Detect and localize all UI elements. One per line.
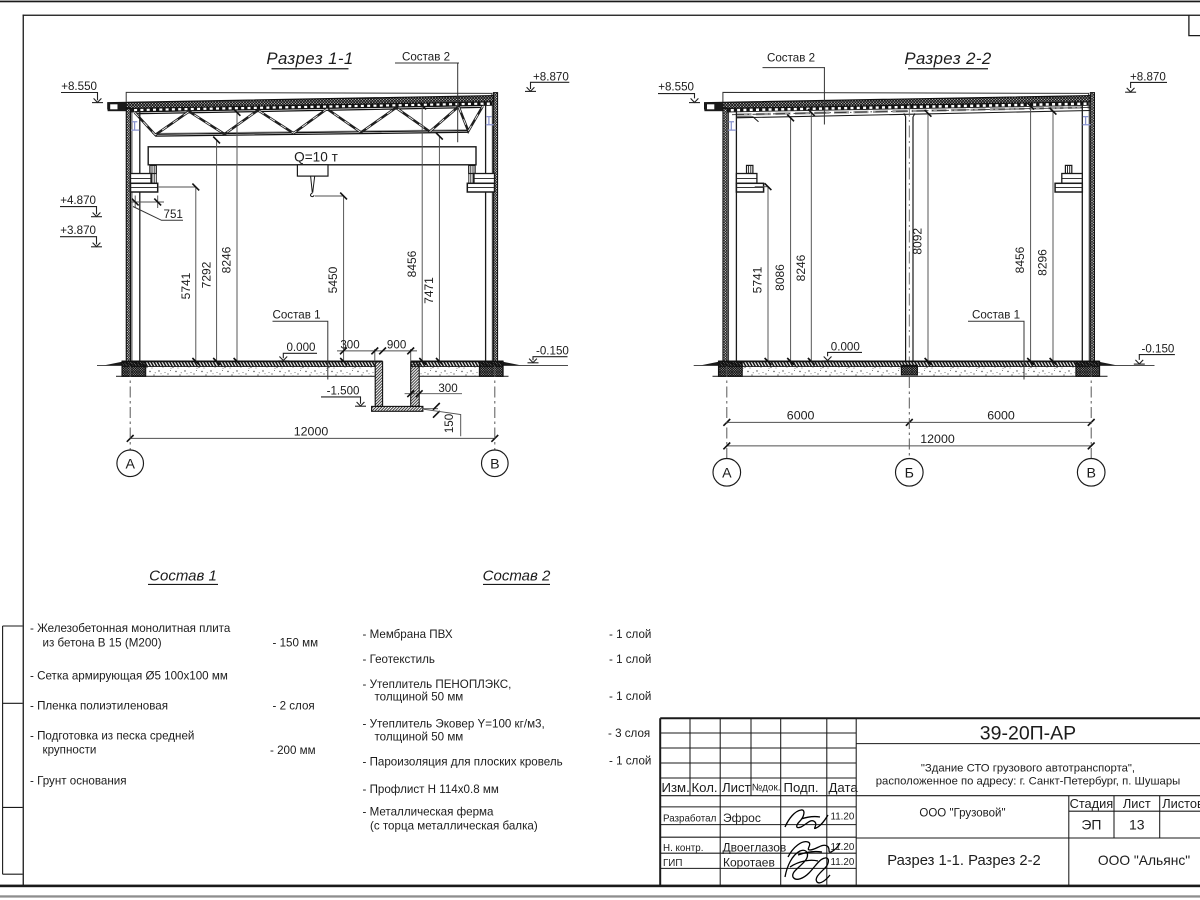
svg-text:7292: 7292 — [199, 261, 213, 288]
svg-text:11.20: 11.20 — [831, 812, 855, 823]
svg-text:расположенное по адресу: г. Са: расположенное по адресу: г. Санкт-Петерб… — [876, 776, 1180, 788]
svg-text:"Здание СТО грузового автотран: "Здание СТО грузового автотранспорта", — [921, 763, 1135, 775]
svg-text:751: 751 — [164, 208, 183, 221]
svg-text:6000: 6000 — [987, 409, 1015, 423]
svg-text:- Грунт основания: - Грунт основания — [30, 774, 127, 787]
svg-text:толщиной 50 мм: толщиной 50 мм — [375, 691, 464, 704]
svg-text:- Профлист Н 114х0.8 мм: - Профлист Н 114х0.8 мм — [363, 783, 499, 796]
svg-text:из бетона В 15 (М200): из бетона В 15 (М200) — [43, 636, 162, 649]
svg-text:В: В — [1086, 465, 1095, 481]
svg-text:- 150 мм: - 150 мм — [273, 636, 319, 649]
svg-text:- Утеплитель ПЕНОПЛЭКС,: - Утеплитель ПЕНОПЛЭКС, — [363, 678, 512, 691]
svg-text:5741: 5741 — [751, 266, 765, 293]
svg-text:8456: 8456 — [1013, 246, 1027, 273]
svg-text:Состав 2: Состав 2 — [483, 568, 551, 585]
svg-text:Разрез 2-2: Разрез 2-2 — [904, 49, 991, 68]
svg-text:11.20: 11.20 — [831, 842, 855, 853]
svg-text:Двоеглазов: Двоеглазов — [723, 841, 787, 855]
svg-text:- 1 слой: - 1 слой — [609, 755, 651, 768]
svg-text:- Мембрана ПВХ: - Мембрана ПВХ — [363, 628, 453, 641]
svg-text:8086: 8086 — [773, 264, 787, 291]
svg-text:- Подготовка из песка средней: - Подготовка из песка средней — [30, 729, 194, 742]
svg-text:8456: 8456 — [405, 250, 419, 277]
svg-text:-1.500: -1.500 — [327, 385, 360, 398]
svg-text:Изм.: Изм. — [662, 780, 690, 795]
svg-text:Подп.: Подп. — [784, 780, 819, 795]
svg-text:Состав 1: Состав 1 — [272, 308, 320, 321]
svg-text:ГИП: ГИП — [663, 858, 682, 869]
svg-text:+8.870: +8.870 — [1130, 70, 1166, 83]
svg-text:+8.870: +8.870 — [533, 70, 569, 83]
svg-text:12000: 12000 — [920, 432, 955, 446]
svg-text:толщиной 50 мм: толщиной 50 мм — [375, 730, 464, 743]
svg-text:А: А — [722, 465, 732, 481]
svg-text:0.000: 0.000 — [286, 341, 315, 354]
svg-text:8092: 8092 — [911, 228, 925, 255]
svg-text:13: 13 — [1129, 817, 1145, 833]
svg-text:900: 900 — [387, 338, 406, 351]
svg-text:0.000: 0.000 — [831, 340, 860, 353]
svg-text:Разрез 1-1. Разрез 2-2: Разрез 1-1. Разрез 2-2 — [887, 853, 1041, 869]
svg-text:Коротаев: Коротаев — [723, 855, 775, 869]
svg-text:- 1 слой: - 1 слой — [609, 690, 651, 703]
svg-text:+8.550: +8.550 — [658, 81, 694, 94]
svg-text:Стадия: Стадия — [1070, 796, 1114, 811]
svg-text:Состав 2: Состав 2 — [767, 52, 815, 65]
svg-text:7471: 7471 — [422, 277, 436, 304]
svg-text:Листов: Листов — [1162, 796, 1200, 811]
svg-text:6000: 6000 — [787, 409, 815, 423]
svg-text:Разрез 1-1: Разрез 1-1 — [266, 49, 353, 68]
svg-text:-0.150: -0.150 — [1142, 343, 1175, 356]
svg-text:11.20: 11.20 — [831, 857, 855, 868]
svg-text:Q=10 т: Q=10 т — [294, 149, 338, 164]
svg-text:8246: 8246 — [220, 246, 234, 273]
svg-text:- Пленка полиэтиленовая: - Пленка полиэтиленовая — [30, 699, 168, 712]
svg-text:ООО "Альянс": ООО "Альянс" — [1098, 853, 1190, 868]
svg-text:Дата: Дата — [829, 780, 859, 795]
svg-text:Состав 2: Состав 2 — [402, 50, 450, 63]
svg-text:Лист: Лист — [722, 780, 751, 795]
svg-text:12000: 12000 — [294, 424, 329, 438]
svg-text:Состав 1: Состав 1 — [149, 568, 217, 585]
svg-text:5741: 5741 — [179, 272, 193, 299]
svg-text:+3.870: +3.870 — [60, 224, 96, 237]
svg-text:А: А — [125, 456, 135, 472]
svg-text:-0.150: -0.150 — [536, 345, 569, 358]
svg-text:Эфрос: Эфрос — [723, 811, 761, 825]
svg-text:Кол.: Кол. — [692, 780, 718, 795]
svg-text:ЭП: ЭП — [1081, 817, 1101, 833]
svg-text:39-20П-АР: 39-20П-АР — [980, 723, 1076, 745]
svg-text:В: В — [490, 456, 499, 472]
svg-text:Разработал: Разработал — [663, 814, 717, 825]
svg-text:8246: 8246 — [794, 254, 808, 281]
svg-text:+4.870: +4.870 — [60, 194, 96, 207]
svg-text:крупности: крупности — [43, 743, 97, 756]
svg-text:Н. контр.: Н. контр. — [663, 843, 703, 854]
svg-text:- Утеплитель Эковер Y=100 кг/м: - Утеплитель Эковер Y=100 кг/м3, — [363, 718, 545, 731]
svg-text:5450: 5450 — [326, 266, 340, 293]
svg-text:Состав 1: Состав 1 — [972, 308, 1020, 321]
svg-text:- 1 слой: - 1 слой — [609, 653, 651, 666]
svg-text:300: 300 — [340, 338, 359, 351]
svg-text:+8.550: +8.550 — [61, 80, 97, 93]
svg-text:- Геотекстиль: - Геотекстиль — [363, 653, 435, 666]
svg-text:- Металлическая ферма: - Металлическая ферма — [363, 806, 495, 819]
svg-text:150: 150 — [443, 414, 456, 433]
svg-text:Лист: Лист — [1123, 796, 1151, 811]
svg-text:(с торца металлическая балка): (с торца металлическая балка) — [370, 820, 538, 833]
svg-text:- 2 слоя: - 2 слоя — [273, 699, 315, 712]
svg-text:Б: Б — [905, 465, 914, 481]
svg-text:- 200 мм: - 200 мм — [270, 744, 316, 757]
svg-text:300: 300 — [438, 382, 457, 395]
svg-text:- 3 слоя: - 3 слоя — [608, 727, 650, 740]
svg-text:- Железобетонная монолитная п: - Железобетонная монолитная плита — [30, 622, 231, 635]
svg-text:8296: 8296 — [1036, 249, 1050, 276]
svg-text:№док.: №док. — [752, 783, 781, 794]
svg-text:ООО "Грузовой": ООО "Грузовой" — [919, 808, 1005, 820]
svg-text:- Пароизоляция для плоских кро: - Пароизоляция для плоских кровель — [363, 756, 563, 769]
svg-text:- 1 слой: - 1 слой — [609, 628, 651, 641]
svg-text:- Сетка армирующая Ø5 100х100: - Сетка армирующая Ø5 100х100 мм — [30, 669, 228, 682]
